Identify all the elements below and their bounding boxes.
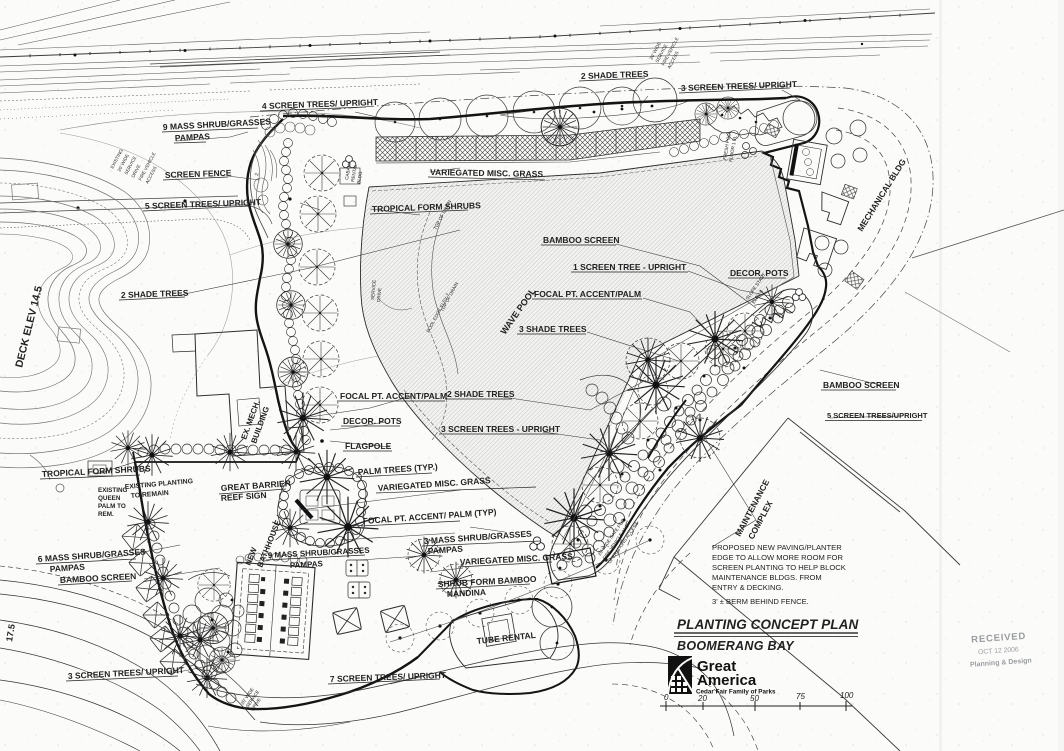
svg-text:America: America [697,672,757,689]
svg-text:PAMPAS: PAMPAS [290,559,324,570]
svg-text:PROPOSED NEW PAVING/PLANTER: PROPOSED NEW PAVING/PLANTER [712,543,842,552]
svg-text:EXISTING: EXISTING [98,487,127,494]
svg-text:3' ± BERM BEHIND FENCE.: 3' ± BERM BEHIND FENCE. [712,597,809,606]
svg-text:0: 0 [664,693,669,702]
svg-text:PAMPAS: PAMPAS [175,131,211,143]
svg-text:EDGE TO ALLOW MORE ROOM FOR: EDGE TO ALLOW MORE ROOM FOR [712,553,843,562]
svg-text:MAINTENANCE BLDGS. FROM: MAINTENANCE BLDGS. FROM [712,573,822,582]
svg-text:BOOMERANG BAY: BOOMERANG BAY [677,639,795,653]
svg-text:2 SHADE TREES: 2 SHADE TREES [447,389,515,399]
svg-text:REM.: REM. [98,511,114,518]
svg-text:PLANTING CONCEPT PLAN: PLANTING CONCEPT PLAN [677,617,859,632]
svg-text:FOCAL PT. ACCENT/PALM: FOCAL PT. ACCENT/PALM [534,289,641,299]
svg-text:SCREEN PLANTING TO HELP BLOCK: SCREEN PLANTING TO HELP BLOCK [712,563,846,572]
svg-text:FOCAL PT. ACCENT/PALM: FOCAL PT. ACCENT/PALM [340,391,447,401]
svg-text:100: 100 [840,691,854,700]
svg-text:QUEEN: QUEEN [98,495,121,502]
svg-text:BAMBOO SCREEN: BAMBOO SCREEN [543,235,620,245]
svg-text:3 SHADE TREES: 3 SHADE TREES [519,324,587,334]
svg-text:75: 75 [796,692,805,701]
svg-text:Cedar Fair Family of Parks: Cedar Fair Family of Parks [696,689,776,696]
svg-text:50: 50 [750,694,759,703]
svg-text:ENTRY & DECKING.: ENTRY & DECKING. [712,583,783,592]
svg-text:DECOR. POTS: DECOR. POTS [343,416,402,426]
svg-text:FLAGPOLE: FLAGPOLE [345,441,392,451]
svg-text:1 SCREEN TREE - UPRIGHT: 1 SCREEN TREE - UPRIGHT [573,262,687,272]
svg-text:5 SCREEN TREES/UPRIGHT: 5 SCREEN TREES/UPRIGHT [827,411,928,420]
svg-text:20: 20 [697,694,707,703]
svg-text:NANDINA: NANDINA [447,587,487,599]
svg-text:PALM TO: PALM TO [98,503,126,510]
svg-text:3 SCREEN TREES - UPRIGHT: 3 SCREEN TREES - UPRIGHT [441,424,561,434]
svg-text:BAMBOO SCREEN: BAMBOO SCREEN [823,380,900,390]
